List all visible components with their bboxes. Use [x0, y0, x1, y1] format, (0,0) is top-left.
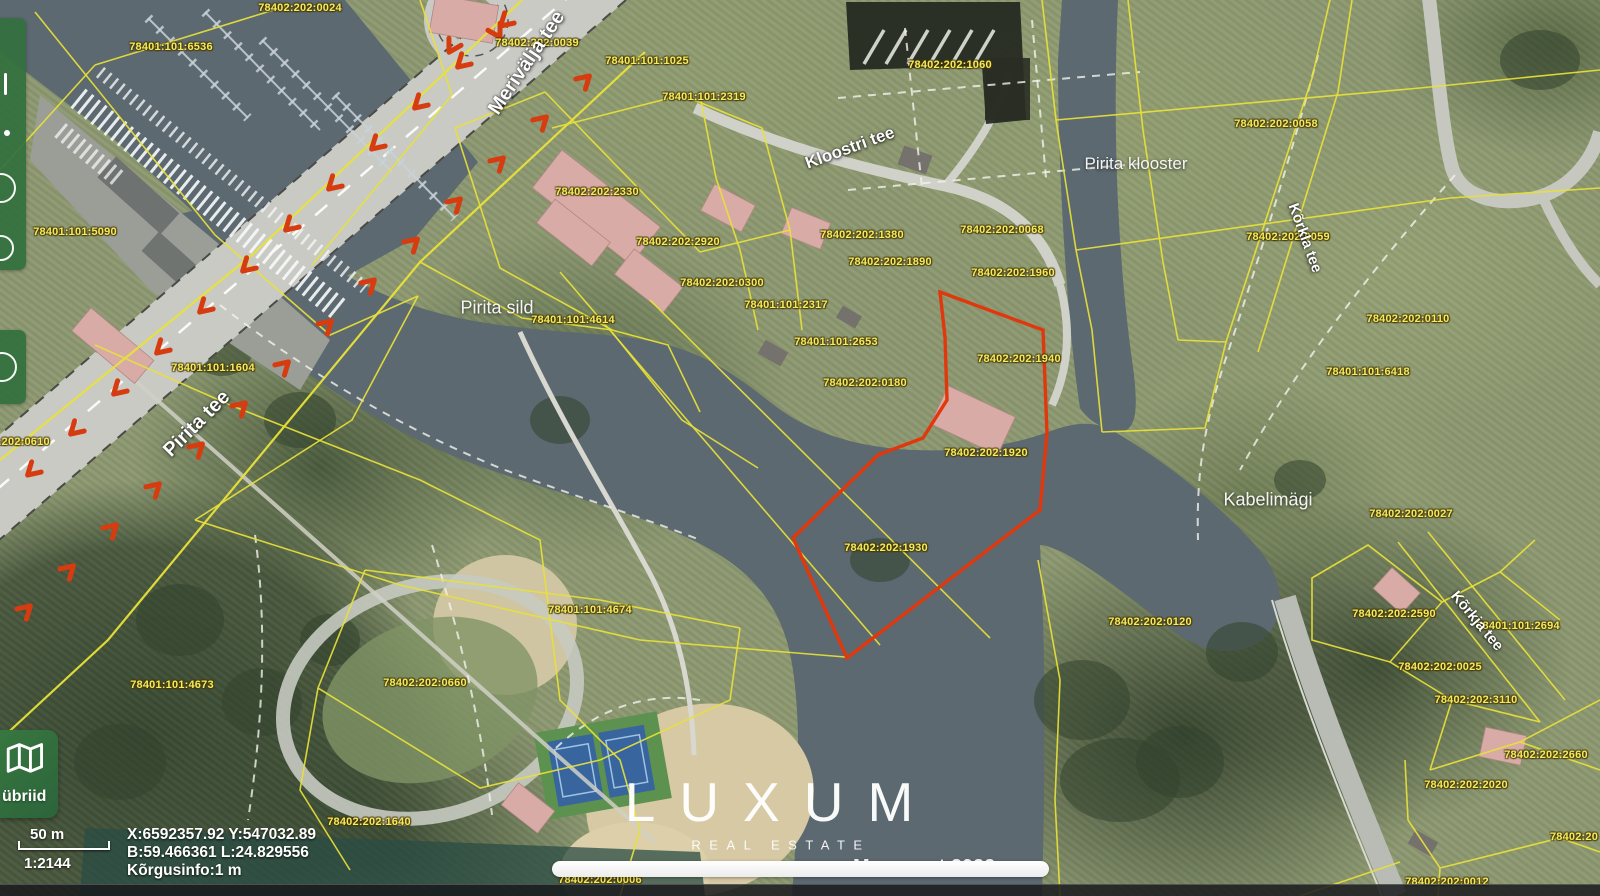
- location-icon: [0, 352, 17, 382]
- elevation-info: Kõrgusinfo:1 m: [127, 862, 316, 880]
- scale-bar: [18, 841, 110, 850]
- bottom-edge-strip: [0, 884, 1600, 896]
- layer-switcher-button[interactable]: übriid: [0, 730, 58, 818]
- scale-ratio: 1:2144: [24, 855, 71, 872]
- convent-ruins: [846, 2, 1030, 124]
- coordinate-readout: X:6592357.92 Y:547032.89 B:59.466361 L:2…: [127, 826, 316, 880]
- crosshair-icon: [0, 173, 16, 203]
- layer-button-label: übriid: [2, 788, 46, 806]
- toolbar-icon-fragment: [4, 130, 10, 136]
- horizontal-scrollbar[interactable]: [552, 861, 1049, 877]
- map-canvas[interactable]: 78402:202:002478401:101:653678402:202:00…: [0, 0, 1600, 896]
- map-graphics: [0, 0, 1600, 896]
- coordinates-bl: B:59.466361 L:24.829556: [127, 844, 316, 862]
- coordinates-xy: X:6592357.92 Y:547032.89: [127, 826, 316, 844]
- side-toolbar-fragment[interactable]: [0, 330, 26, 404]
- watermark-subtitle: REAL ESTATE: [691, 838, 870, 853]
- watermark-title: LUXUM: [625, 770, 938, 834]
- rotate-icon: [0, 235, 14, 261]
- side-toolbar-fragment[interactable]: [0, 18, 26, 270]
- toolbar-icon-fragment: [4, 73, 7, 95]
- map-icon: [6, 742, 46, 776]
